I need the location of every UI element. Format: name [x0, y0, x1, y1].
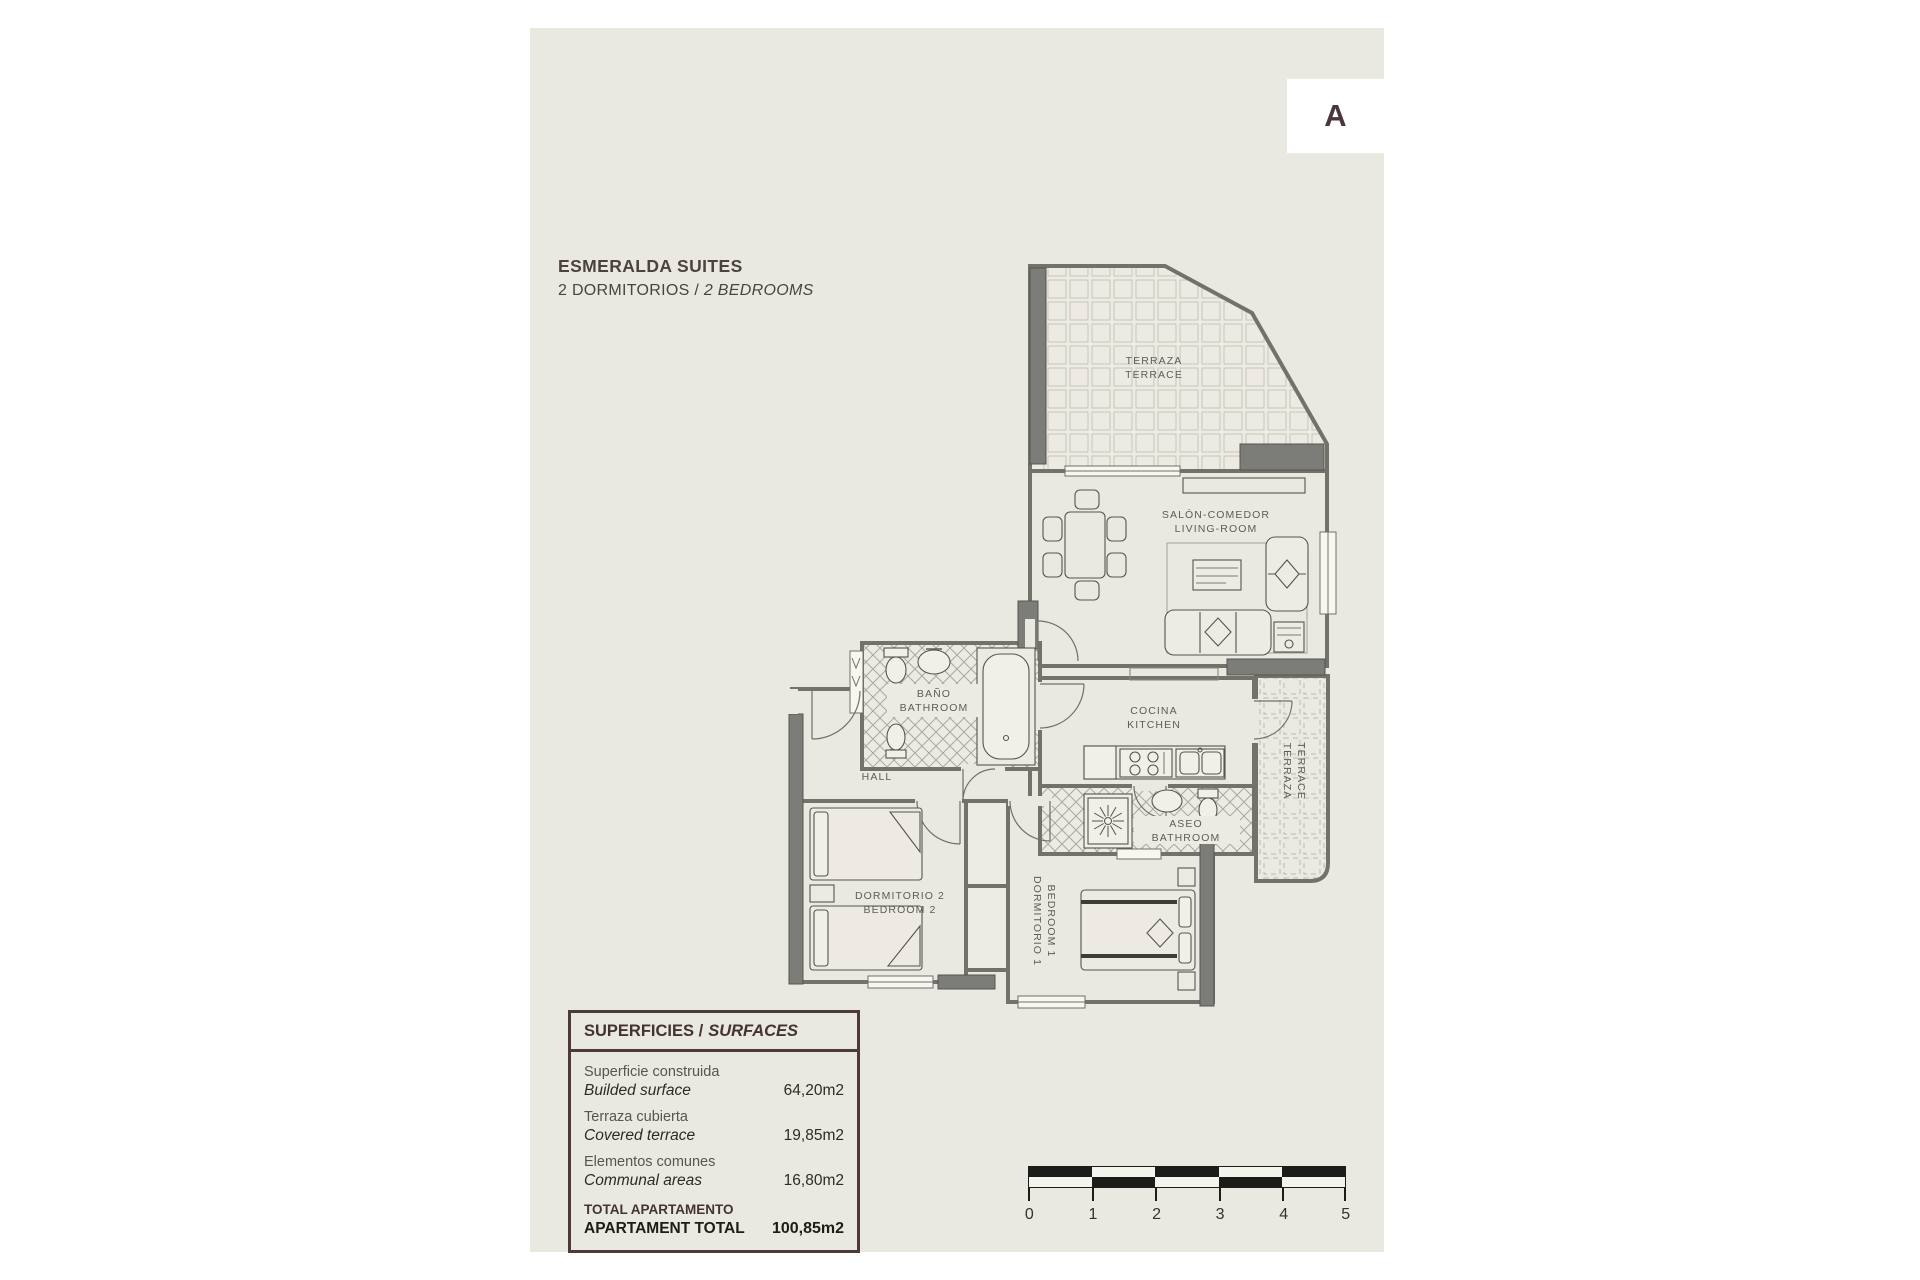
svg-text:TERRACE: TERRACE [1295, 742, 1307, 800]
nightstand-b2 [810, 885, 834, 902]
surfaces-body: Superficie construida Builded surface 64… [571, 1052, 857, 1250]
surface-value-terrace: 19,85m2 [784, 1127, 844, 1145]
room-label-bathroom: BAÑO [917, 687, 951, 700]
bidet [887, 724, 905, 750]
toilet [886, 657, 906, 683]
floorplan-svg: TERRAZA TERRACE SALÓN-COMEDOR LIVING-ROO… [782, 256, 1342, 1046]
svg-text:BEDROOM 2: BEDROOM 2 [864, 904, 937, 916]
bath-sink [918, 650, 950, 674]
surface-value-communal: 16,80m2 [784, 1172, 844, 1190]
room-label-terrace-top: TERRAZA [1126, 355, 1183, 367]
coffee-table [1193, 560, 1241, 590]
surface-row-communal: Elementos comunes Communal areas 16,80m2 [584, 1154, 844, 1190]
svg-text:LIVING-ROOM: LIVING-ROOM [1175, 523, 1258, 535]
vent-bathroom [850, 651, 863, 713]
closet-top [966, 801, 1008, 886]
surface-row-built: Superficie construida Builded surface 64… [584, 1064, 844, 1100]
aseo-toilet-tank [1198, 789, 1218, 798]
surface-row-terrace: Terraza cubierta Covered terrace 19,85m2 [584, 1109, 844, 1145]
dining-table [1065, 512, 1105, 578]
kitchen-sink [1176, 749, 1224, 777]
scale-num-1: 1 [1088, 1206, 1097, 1224]
room-label-bedroom2: DORMITORIO 2 [855, 890, 945, 902]
scale-num-4: 4 [1279, 1206, 1288, 1224]
scale-num-5: 5 [1341, 1206, 1350, 1224]
aseo-sink [1152, 790, 1182, 812]
svg-text:BEDROOM 1: BEDROOM 1 [1045, 885, 1057, 958]
surfaces-title-en: SURFACES [708, 1022, 798, 1040]
surface-value-total: 100,85m2 [772, 1220, 844, 1238]
plan-page: A ESMERALDA SUITES 2 DORMITORIOS / 2 BED… [530, 28, 1384, 1252]
surfaces-table: SUPERFICIES /SURFACES Superficie constru… [568, 1010, 860, 1253]
subtitle-es: 2 DORMITORIOS / [558, 282, 699, 299]
title-block: ESMERALDA SUITES 2 DORMITORIOS / 2 BEDRO… [558, 256, 814, 300]
svg-text:BATHROOM: BATHROOM [900, 702, 969, 714]
surface-value-built: 64,20m2 [784, 1082, 844, 1100]
page-title: ESMERALDA SUITES [558, 256, 814, 277]
unit-badge: A [1287, 79, 1384, 153]
room-label-kitchen: COCINA [1130, 705, 1177, 717]
svg-text:BATHROOM: BATHROOM [1152, 832, 1221, 844]
page-subtitle: 2 DORMITORIOS / 2 BEDROOMS [558, 282, 814, 300]
scale-bar: 0 1 2 3 4 5 [1028, 1166, 1346, 1236]
scale-num-3: 3 [1216, 1206, 1225, 1224]
scale-num-0: 0 [1025, 1206, 1034, 1224]
surfaces-title-es: SUPERFICIES / [584, 1022, 703, 1040]
nightstand-b1-bottom [1178, 972, 1195, 990]
unit-letter: A [1324, 98, 1346, 134]
room-label-living: SALÓN-COMEDOR [1162, 508, 1270, 521]
surface-row-total: TOTAL APARTAMENTO APARTAMENT TOTAL 100,8… [584, 1202, 844, 1238]
toilet-tank [884, 648, 908, 657]
window-aseo [1117, 849, 1161, 859]
svg-text:TERRACE: TERRACE [1125, 369, 1183, 381]
surfaces-header: SUPERFICIES /SURFACES [571, 1013, 857, 1052]
svg-text:KITCHEN: KITCHEN [1127, 719, 1181, 731]
nightstand-b1-top [1178, 868, 1195, 886]
room-label-aseo: ASEO [1169, 818, 1203, 830]
scale-bar-segments [1028, 1166, 1346, 1188]
closet-bottom [966, 886, 1008, 970]
room-label-hall: HALL [862, 771, 893, 783]
room-label-terrace-side: TERRAZA [1281, 743, 1293, 800]
scale-num-2: 2 [1152, 1206, 1161, 1224]
room-label-bedroom1: DORMITORIO 1 [1031, 876, 1043, 966]
